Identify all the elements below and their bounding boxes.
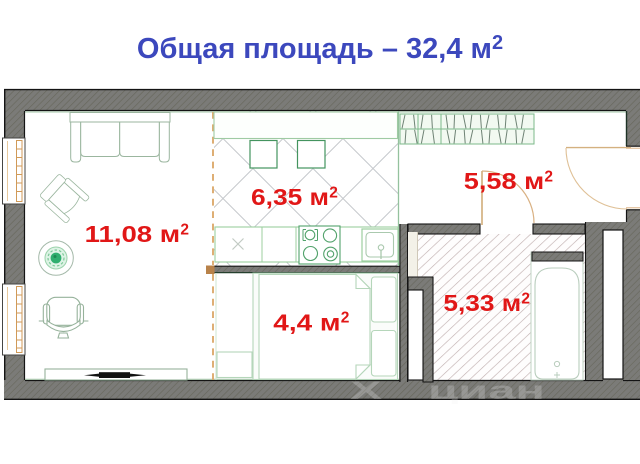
svg-text:Х: Х bbox=[350, 377, 383, 405]
svg-text:циан: циан bbox=[428, 377, 545, 405]
svg-text:11,08 м: 11,08 м bbox=[85, 221, 181, 247]
svg-text:Общая площадь – 32,4 м2: Общая площадь – 32,4 м2 bbox=[137, 32, 503, 65]
svg-text:4,4 м: 4,4 м bbox=[273, 309, 340, 335]
svg-text:6,35 м: 6,35 м bbox=[251, 184, 329, 210]
svg-text:2: 2 bbox=[521, 290, 530, 307]
svg-text:2: 2 bbox=[180, 221, 189, 238]
svg-text:5,33 м: 5,33 м bbox=[443, 290, 521, 316]
svg-text:2: 2 bbox=[544, 168, 553, 185]
svg-text:5,58 м: 5,58 м bbox=[464, 168, 544, 194]
svg-text:2: 2 bbox=[341, 310, 350, 327]
svg-text:2: 2 bbox=[329, 184, 338, 201]
